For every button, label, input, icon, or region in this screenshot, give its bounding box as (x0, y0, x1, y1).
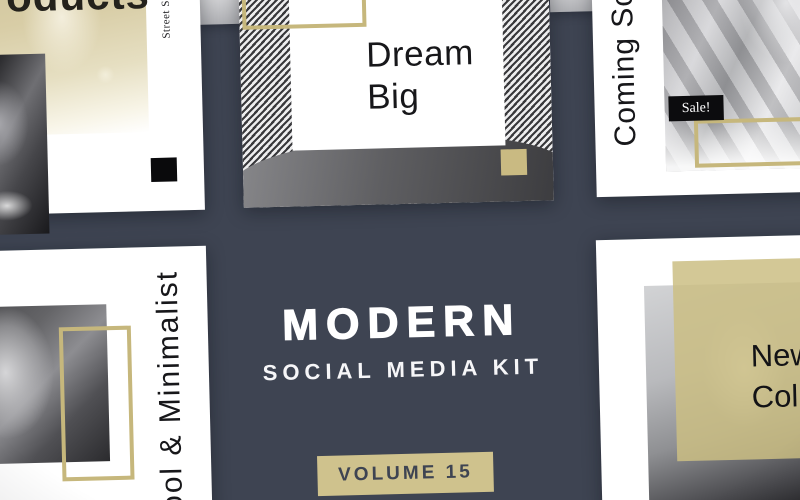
template-card-bottom-left: Cool & Minimalist (0, 246, 213, 500)
rotated-composition: Products Street Style Dream Big Sale! Co… (0, 0, 800, 500)
poster-canvas: Products Street Style Dream Big Sale! Co… (0, 0, 800, 500)
bw-model-photo (0, 54, 49, 237)
coming-soon-side-label: Coming Soon (605, 0, 644, 147)
template-card-top-center: Dream Big (238, 0, 554, 208)
background-card-sliver-left (196, 0, 241, 25)
gold-frame-accent (694, 115, 800, 168)
template-card-bottom-right: New Collection (596, 234, 800, 500)
sale-badge: Sale! (668, 95, 724, 121)
new-collection-headline: New Collection (750, 333, 800, 418)
new-collection-line2: Collection (751, 374, 800, 418)
gold-frame-accent (59, 326, 135, 482)
street-style-side-label: Street Style (159, 0, 172, 39)
dream-big-line1: Dream (366, 31, 504, 76)
new-collection-line1: New (750, 333, 800, 377)
kit-title: MODERN (216, 294, 587, 352)
volume-badge: VOLUME 15 (317, 452, 494, 496)
kit-subtitle: SOCIAL MEDIA KIT (218, 352, 589, 387)
template-card-top-left: Products Street Style (0, 0, 205, 216)
gold-square-accent (501, 149, 528, 176)
cool-minimalist-side-label: Cool & Minimalist (150, 270, 190, 500)
black-square-accent (151, 157, 178, 182)
template-card-top-right: Sale! Coming Soon (591, 0, 800, 197)
dream-big-line2: Big (367, 73, 505, 118)
gold-frame-accent (240, 0, 367, 30)
